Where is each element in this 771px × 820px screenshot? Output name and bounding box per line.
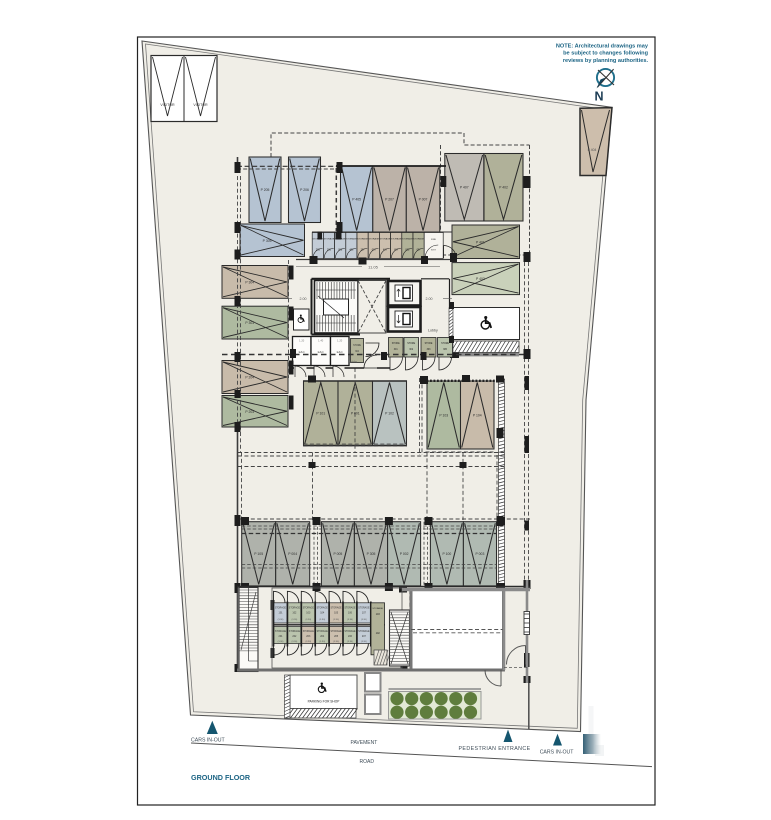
svg-text:STORAGE: STORAGE xyxy=(275,630,287,633)
svg-text:STORAGE: STORAGE xyxy=(289,630,301,633)
svg-text:P 101: P 101 xyxy=(316,412,325,416)
svg-text:STORAGE: STORAGE xyxy=(346,238,357,241)
svg-text:STORAGE: STORAGE xyxy=(357,238,368,241)
svg-text:406: 406 xyxy=(349,249,354,252)
svg-text:P 100: P 100 xyxy=(442,552,451,556)
svg-text:P 003: P 003 xyxy=(476,552,485,556)
svg-text:(3.90): (3.90) xyxy=(333,619,339,621)
svg-text:(3.90): (3.90) xyxy=(347,619,353,621)
svg-text:2.00: 2.00 xyxy=(300,297,307,301)
svg-text:STORAGE: STORAGE xyxy=(413,238,424,241)
svg-text:P 104: P 104 xyxy=(473,413,482,417)
svg-text:Lobby: Lobby xyxy=(349,360,358,364)
svg-text:STORAGE: STORAGE xyxy=(344,630,356,633)
svg-text:P 305: P 305 xyxy=(263,239,272,243)
svg-text:(3.90): (3.90) xyxy=(305,641,311,643)
svg-text:P 304: P 304 xyxy=(245,281,254,285)
svg-text:203: 203 xyxy=(306,635,311,638)
svg-text:201: 201 xyxy=(279,635,284,638)
svg-text:(3.90): (3.90) xyxy=(361,641,367,643)
svg-text:103: 103 xyxy=(306,612,311,615)
svg-text:(3.90): (3.90) xyxy=(292,641,298,643)
svg-text:205: 205 xyxy=(334,635,339,638)
svg-text:reviews by planning authoritie: reviews by planning authorities. xyxy=(563,58,649,64)
svg-text:NOTE: Architectural drawings m: NOTE: Architectural drawings may xyxy=(556,44,649,50)
svg-text:1.40: 1.40 xyxy=(318,339,324,343)
svg-text:206: 206 xyxy=(327,249,332,252)
svg-text:P 206: P 206 xyxy=(300,188,309,192)
svg-text:STORE: STORE xyxy=(441,343,449,345)
svg-text:007: 007 xyxy=(417,249,422,252)
svg-text:P 004: P 004 xyxy=(288,552,297,556)
svg-text:STORAGE: STORAGE xyxy=(303,630,315,633)
svg-text:007: 007 xyxy=(372,249,377,252)
svg-text:STORE: STORE xyxy=(425,343,433,345)
svg-text:103: 103 xyxy=(376,613,381,616)
svg-text:407: 407 xyxy=(383,249,388,252)
svg-text:206: 206 xyxy=(348,635,353,638)
svg-text:207: 207 xyxy=(362,635,367,638)
svg-text:CARS IN-OUT: CARS IN-OUT xyxy=(540,750,575,756)
svg-text:FIRE: FIRE xyxy=(431,239,437,241)
svg-text:STORAGE: STORAGE xyxy=(372,607,383,610)
svg-text:EXIT: EXIT xyxy=(431,250,437,252)
svg-text:PARKING FOR SHOP: PARKING FOR SHOP xyxy=(308,700,340,704)
svg-text:(3.90): (3.90) xyxy=(361,619,367,621)
svg-text:P 402: P 402 xyxy=(499,186,508,190)
svg-text:P 204: P 204 xyxy=(245,376,254,380)
svg-text:STORAGE: STORAGE xyxy=(368,238,379,241)
svg-text:P 203: P 203 xyxy=(245,410,254,414)
svg-text:(3.90): (3.90) xyxy=(305,619,311,621)
svg-text:PAVEMENT: PAVEMENT xyxy=(351,740,378,746)
svg-text:STORE: STORE xyxy=(392,343,400,345)
svg-text:104: 104 xyxy=(320,612,325,615)
svg-text:STORAGE: STORAGE xyxy=(402,238,413,241)
svg-text:11.05: 11.05 xyxy=(368,264,378,269)
svg-text:607: 607 xyxy=(394,249,399,252)
svg-text:(3.90): (3.90) xyxy=(319,641,325,643)
svg-text:005: 005 xyxy=(405,249,410,252)
svg-text:P 207: P 207 xyxy=(385,197,394,201)
svg-text:P 002: P 002 xyxy=(400,552,409,556)
svg-text:P 102: P 102 xyxy=(385,412,394,416)
svg-text:STORAGE: STORAGE xyxy=(330,630,342,633)
svg-text:STORAGE: STORAGE xyxy=(358,630,370,633)
svg-text:STORAGE: STORAGE xyxy=(317,607,329,610)
svg-text:102: 102 xyxy=(376,632,381,635)
svg-text:STORE: STORE xyxy=(407,343,415,345)
svg-text:STORAGE: STORAGE xyxy=(330,607,342,610)
svg-text:105: 105 xyxy=(334,612,339,615)
svg-text:be subject to changes followin: be subject to changes following xyxy=(563,51,648,57)
svg-text:Lobby: Lobby xyxy=(428,329,438,333)
svg-text:E&C: E&C xyxy=(318,350,325,354)
svg-text:STORAGE: STORAGE xyxy=(324,238,335,241)
svg-text:(3.90): (3.90) xyxy=(333,641,339,643)
svg-text:STORAGE: STORAGE xyxy=(344,607,356,610)
svg-text:E&C: E&C xyxy=(299,350,306,354)
svg-text:STORAGE: STORAGE xyxy=(391,238,402,241)
svg-text:P 205: P 205 xyxy=(261,188,270,192)
svg-text:107: 107 xyxy=(362,612,367,615)
svg-text:P 407: P 407 xyxy=(460,186,469,190)
svg-text:P 405: P 405 xyxy=(352,197,361,201)
svg-text:P 005: P 005 xyxy=(333,552,342,556)
svg-text:(3.90): (3.90) xyxy=(347,641,353,643)
svg-text:CARS IN-OUT: CARS IN-OUT xyxy=(191,738,226,744)
svg-text:P 303: P 303 xyxy=(245,321,254,325)
svg-text:ROAD: ROAD xyxy=(360,759,375,765)
svg-text:STORAGE: STORAGE xyxy=(380,238,391,241)
svg-text:VISITOR: VISITOR xyxy=(160,103,175,107)
svg-text:E&C: E&C xyxy=(337,350,344,354)
svg-text:P 007: P 007 xyxy=(419,197,428,201)
svg-text:106: 106 xyxy=(348,612,353,615)
svg-text:P 103: P 103 xyxy=(439,413,448,417)
svg-text:(3.90): (3.90) xyxy=(278,641,284,643)
svg-text:STORAGE: STORAGE xyxy=(317,630,329,633)
svg-text:STORAGE: STORAGE xyxy=(303,607,315,610)
svg-text:006: 006 xyxy=(338,249,343,252)
svg-text:STORAGE: STORAGE xyxy=(358,607,370,610)
svg-text:VISITOR: VISITOR xyxy=(193,103,208,107)
svg-text:P 403: P 403 xyxy=(476,277,485,281)
svg-text:204: 204 xyxy=(320,635,325,638)
svg-text:(3.90): (3.90) xyxy=(319,619,325,621)
svg-text:102: 102 xyxy=(292,612,297,615)
svg-text:STORE: STORE xyxy=(353,345,361,347)
svg-text:(3.90): (3.90) xyxy=(292,619,298,621)
svg-text:202: 202 xyxy=(292,635,297,638)
svg-text:N: N xyxy=(595,90,604,104)
svg-text:205: 205 xyxy=(316,249,321,252)
svg-text:P 305: P 305 xyxy=(367,552,376,556)
svg-text:2.00: 2.00 xyxy=(426,297,433,301)
svg-text:P 105: P 105 xyxy=(254,552,263,556)
svg-text:101: 101 xyxy=(279,612,284,615)
svg-text:GROUND FLOOR: GROUND FLOOR xyxy=(191,773,251,782)
svg-text:1.20: 1.20 xyxy=(299,339,305,343)
svg-text:(3.90): (3.90) xyxy=(278,619,284,621)
svg-text:P 401: P 401 xyxy=(476,240,485,244)
svg-text:STORAGE: STORAGE xyxy=(275,607,287,610)
svg-text:P 404: P 404 xyxy=(588,148,597,152)
svg-text:PEDESTRIAN ENTRANCE: PEDESTRIAN ENTRANCE xyxy=(459,746,531,752)
svg-text:207: 207 xyxy=(361,249,366,252)
svg-text:1.20: 1.20 xyxy=(337,339,343,343)
svg-text:STORAGE: STORAGE xyxy=(289,607,301,610)
